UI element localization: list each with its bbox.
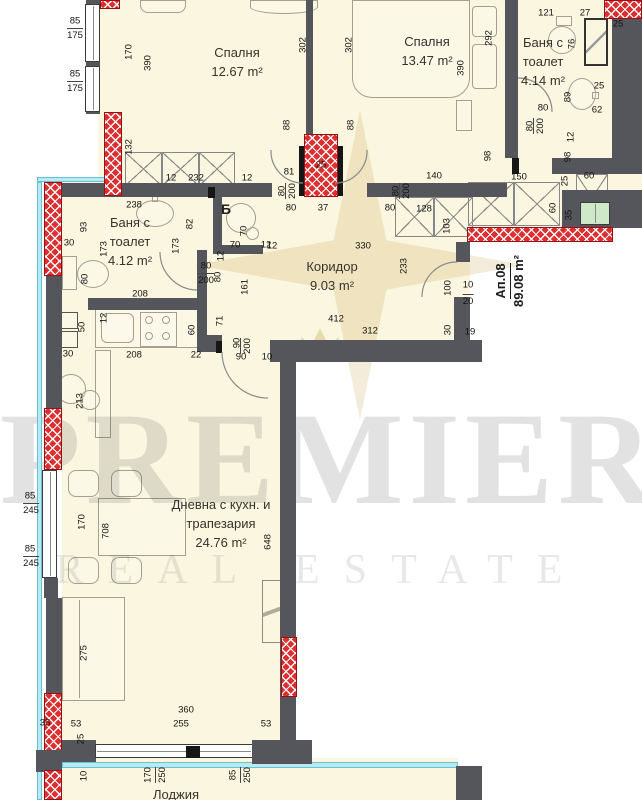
dimension-label: 30 (64, 238, 75, 248)
dimension-label: 80 (201, 261, 212, 271)
dimension-label: 25 (76, 734, 86, 745)
balcony-window (95, 744, 253, 758)
dimension-label: 90 (236, 352, 247, 362)
wall-segment (367, 183, 507, 197)
dimension-label: 10 (463, 280, 474, 290)
dimension-label: 85 (228, 770, 238, 781)
dimension-label: 53 (71, 719, 82, 729)
dimension-label: 98 (563, 152, 573, 163)
dimension-label: 60 (187, 325, 197, 336)
dimension-label: 80 (80, 274, 90, 285)
chair (68, 557, 99, 584)
dimension-label: 173 (171, 238, 181, 254)
dimension-label: 250 (155, 767, 167, 783)
door-jamb (208, 187, 215, 198)
dimension-label: 12 (267, 241, 278, 251)
burner (162, 316, 170, 324)
masonry-wall-hatch (44, 770, 62, 800)
dimension-label: 12 (566, 132, 576, 143)
dimension-label: 35 (564, 210, 574, 221)
apartment-id-label: Ап.08 89.08 m² (482, 243, 538, 319)
dimension-label: 50 (77, 322, 87, 333)
door-jamb (338, 146, 343, 196)
wardrobe-cell (125, 152, 162, 186)
dimension-label: 173 (99, 241, 109, 257)
dimension-label: 30 (443, 325, 453, 336)
dimension-label: 200 (285, 183, 297, 199)
dimension-label: 12 (242, 173, 253, 183)
dimension-label: 80 (385, 203, 396, 213)
dimension-label: 10 (262, 352, 273, 362)
dimension-label: 330 (355, 241, 371, 251)
toilet-tank (556, 16, 572, 26)
burner (162, 332, 170, 340)
dimension-label: 648 (263, 534, 273, 550)
dimension-label: 12 (99, 313, 109, 324)
dimension-label: 25 (316, 160, 327, 170)
dimension-label: 175 (67, 81, 83, 93)
room-label-bedroom-1: Спалня12.67 m² (211, 44, 262, 82)
dimension-label: 292 (484, 30, 494, 46)
wall-segment (505, 0, 518, 158)
door-sill (186, 746, 200, 758)
bed-small (140, 0, 186, 13)
dimension-label: 88 (282, 120, 292, 131)
room-label-bathroom-top: Баня стоалет4.14 m² (521, 34, 565, 91)
shower (584, 18, 608, 66)
dimension-label: 19 (465, 327, 476, 337)
dimension-label: 80 (286, 203, 297, 213)
wall-segment (62, 183, 272, 197)
dimension-label: 25 (594, 81, 605, 91)
burner (145, 332, 153, 340)
masonry-wall-hatch (44, 408, 62, 470)
dimension-label: 302 (344, 37, 354, 53)
masonry-wall-hatch (100, 0, 120, 9)
dimension-label: 132 (124, 139, 134, 155)
dimension-label: 35 (40, 718, 51, 728)
dimension-label: 85 (25, 491, 36, 501)
dimension-label: 200 (533, 118, 545, 134)
wall-segment (612, 19, 642, 169)
dimension-label: 12 (216, 251, 226, 262)
dimension-label: 161 (240, 279, 250, 295)
masonry-wall-hatch (467, 227, 613, 242)
door-jamb (216, 341, 222, 353)
dimension-label: 93 (79, 222, 89, 233)
masonry-wall-hatch (281, 637, 297, 697)
dimension-label: 12 (166, 173, 177, 183)
dimension-label: 170 (77, 514, 87, 530)
dimension-label: 81 (284, 167, 295, 177)
window (85, 66, 100, 112)
dimension-label: 80 (538, 103, 549, 113)
dimension-label: 62 (592, 105, 603, 115)
dimension-label: 25 (560, 176, 570, 187)
dimension-label: 37 (318, 203, 329, 213)
wall-segment (46, 598, 62, 695)
dimension-label: 53 (261, 719, 272, 729)
dimension-label: 60 (548, 203, 558, 214)
wall-segment (88, 298, 207, 310)
sink-tap (592, 92, 599, 99)
dimension-label: 312 (362, 326, 378, 336)
room-label-bedroom-2: Спалня13.47 m² (401, 33, 452, 71)
apartment-number: Ап.08 (493, 263, 510, 298)
dimension-label: 170 (143, 767, 153, 783)
window (42, 470, 57, 578)
dimension-label: 208 (132, 289, 148, 299)
masonry-wall-hatch (44, 182, 62, 276)
wall-segment (456, 766, 482, 800)
wardrobe-cell (199, 152, 235, 186)
dimension-label: 27 (580, 8, 591, 18)
toilet-tank (62, 256, 77, 290)
wall-segment (36, 750, 62, 772)
dimension-label: 140 (426, 171, 442, 181)
dimension-label: 80 (213, 272, 223, 283)
section-marker: Б (221, 201, 231, 217)
dimension-label: 76 (567, 39, 577, 50)
dimension-label: 85 (70, 16, 81, 26)
dimension-label: 100 (443, 280, 453, 296)
dimension-label: 82 (185, 219, 195, 230)
masonry-wall-hatch (104, 112, 122, 196)
dimension-label: 170 (124, 44, 134, 60)
dimension-label: 88 (346, 120, 356, 131)
dimension-label: 238 (126, 200, 142, 210)
dimension-label: 255 (173, 719, 189, 729)
dimension-label: 232 (188, 173, 204, 183)
wall-segment (252, 740, 312, 764)
sofa (62, 597, 125, 701)
wall-segment (456, 242, 470, 262)
room-label-balcony: Лоджия (153, 786, 199, 800)
dimension-label: 85 (25, 544, 36, 554)
dimension-label: 70 (239, 226, 249, 237)
dimension-label: 10 (79, 771, 89, 782)
dimension-label: 150 (511, 172, 527, 182)
dimension-label: 60 (584, 171, 595, 181)
masonry-wall-hatch (604, 0, 642, 19)
dimension-label: 412 (328, 314, 344, 324)
dimension-label: 200 (399, 183, 411, 199)
neighbor-window (580, 202, 610, 225)
dimension-label: 175 (67, 28, 83, 40)
dimension-label: 22 (191, 350, 202, 360)
dimension-label: 103 (442, 218, 452, 234)
apartment-area: 89.08 m² (511, 255, 527, 307)
window (85, 4, 100, 62)
dimension-label: 98 (483, 151, 493, 162)
nightstand (472, 44, 497, 89)
dimension-label: 245 (23, 503, 39, 515)
burner (145, 316, 153, 324)
dimension-label: 302 (298, 37, 308, 53)
dimension-label: 71 (215, 316, 225, 327)
dimension-label: 250 (240, 767, 252, 783)
chair (68, 470, 99, 497)
dimension-label: 89 (563, 92, 573, 103)
room-label-corridor: Коридор9.03 m² (306, 258, 357, 296)
dimension-label: 208 (126, 350, 142, 360)
door-jamb (299, 146, 304, 196)
dimension-label: 213 (75, 393, 85, 409)
dimension-label: 233 (399, 258, 409, 274)
dimension-label: 30 (63, 349, 74, 359)
dimension-label: 360 (178, 705, 194, 715)
room-label-bathroom-left: Баня стоалет4.12 m² (108, 214, 152, 271)
wall-segment (46, 276, 62, 408)
wall-segment (280, 360, 296, 758)
wall-segment (306, 0, 313, 136)
wall-segment (44, 578, 58, 598)
dimension-label: 20 (463, 294, 474, 306)
floor-plan: PREMIER REAL ESTATE (0, 0, 642, 800)
dimension-label: 390 (456, 60, 466, 76)
dimension-label: 25 (613, 19, 624, 29)
dimension-label: 128 (416, 204, 432, 214)
wall-segment (270, 340, 482, 362)
bench (456, 100, 472, 131)
dimension-label: 70 (230, 240, 241, 250)
dimension-label: 275 (79, 645, 89, 661)
dimension-label: 121 (538, 8, 554, 18)
dimension-label: 245 (23, 556, 39, 568)
chair (111, 557, 142, 584)
dimension-label: 708 (101, 523, 111, 539)
dimension-label: 390 (143, 55, 153, 71)
room-label-living-room: Дневна с кухн. итрапезария24.76 m² (172, 496, 271, 553)
chair (111, 470, 142, 497)
dimension-label: 85 (70, 69, 81, 79)
